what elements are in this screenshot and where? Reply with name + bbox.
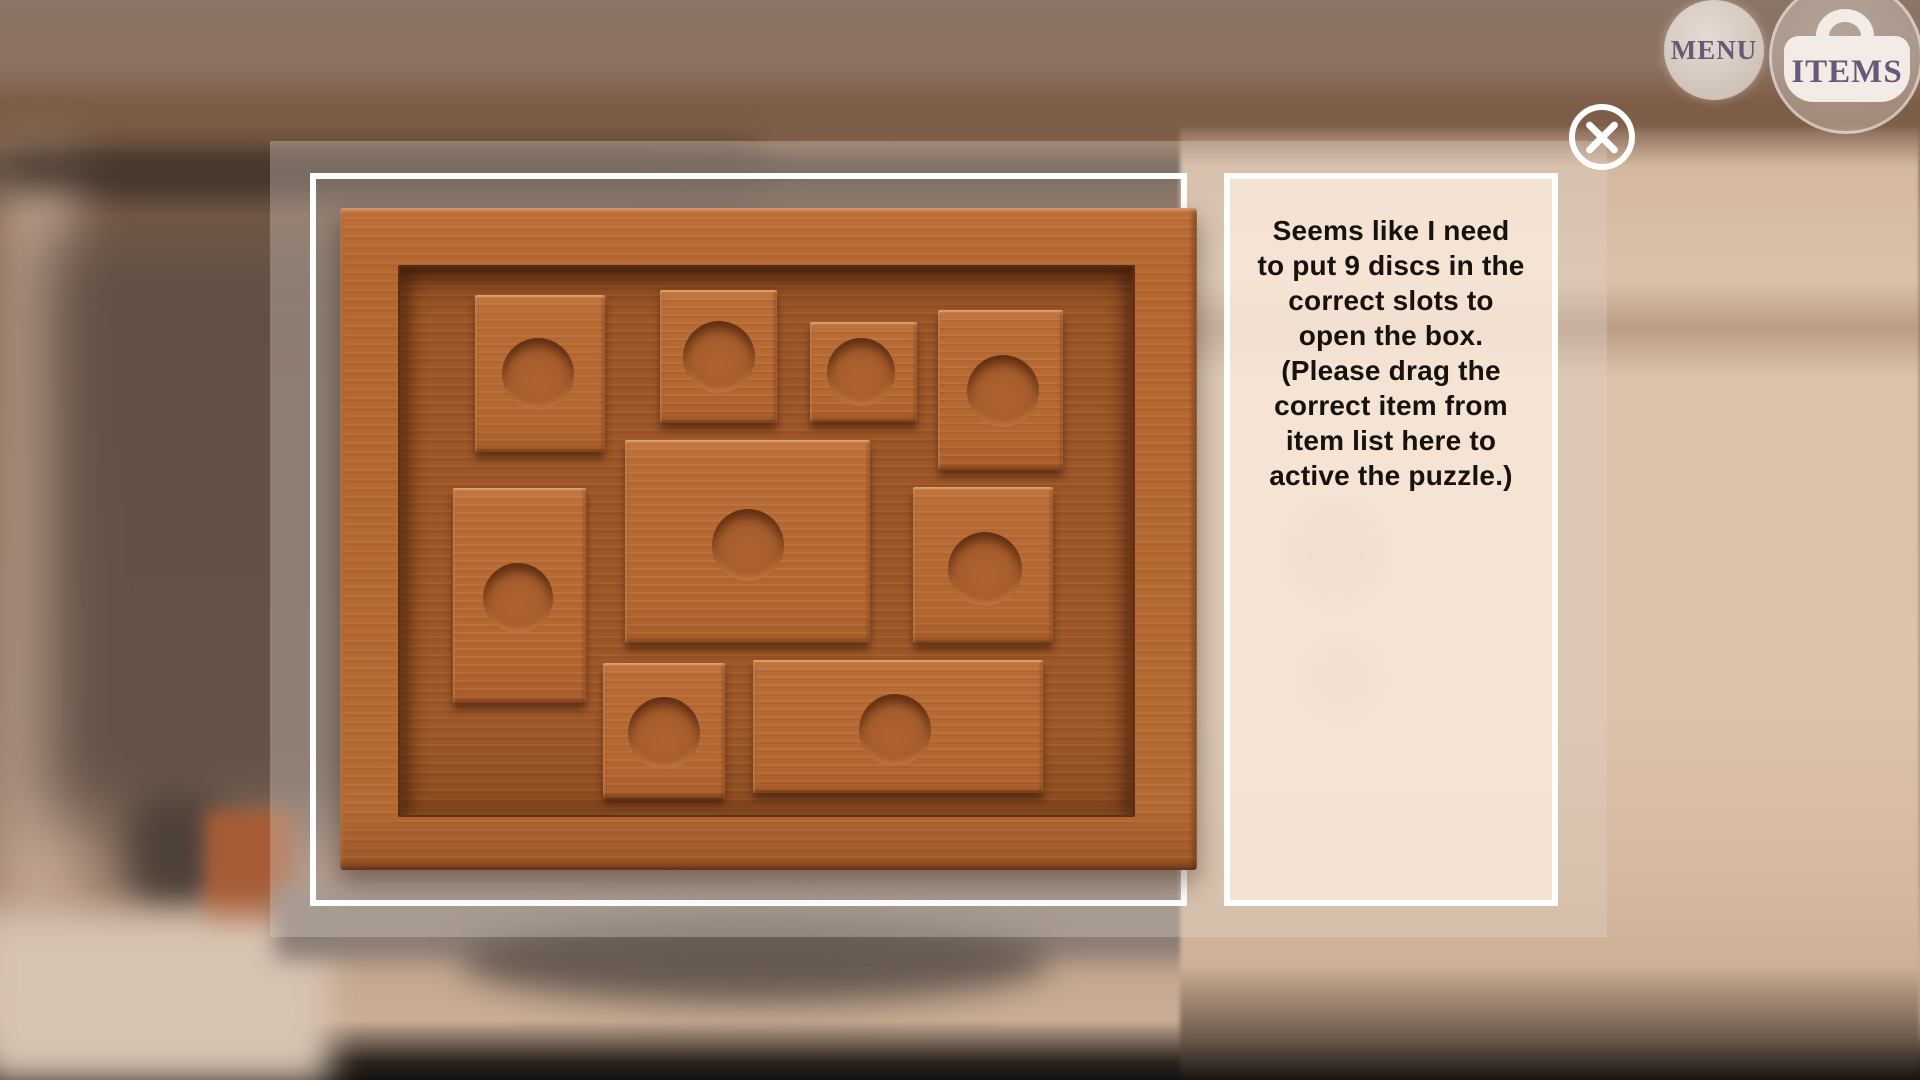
disc-slot[interactable]: [502, 338, 574, 410]
disc-slot[interactable]: [628, 697, 700, 769]
disc-slot[interactable]: [967, 355, 1039, 427]
instruction-text: Seems like I need to put 9 discs in the …: [1230, 179, 1552, 493]
game-screen: Seems like I need to put 9 discs in the …: [0, 0, 1920, 1080]
disc-slot[interactable]: [827, 338, 895, 406]
items-button-label: ITEMS: [1791, 54, 1902, 91]
disc-slot-tile[interactable]: [475, 295, 605, 452]
menu-button[interactable]: MENU: [1664, 0, 1764, 100]
disc-slot-tile[interactable]: [810, 322, 917, 422]
disc-slot[interactable]: [948, 532, 1022, 606]
puzzle-board[interactable]: [340, 208, 1197, 870]
disc-slot-tile[interactable]: [938, 310, 1063, 470]
disc-slot[interactable]: [712, 509, 784, 581]
disc-slot[interactable]: [859, 694, 931, 766]
disc-slot-tile[interactable]: [753, 660, 1043, 793]
disc-slot-tile[interactable]: [603, 663, 725, 798]
menu-button-label: MENU: [1671, 35, 1758, 66]
disc-slot-tile[interactable]: [913, 487, 1053, 643]
disc-slot-tile[interactable]: [453, 488, 586, 703]
disc-slot-tile[interactable]: [660, 290, 777, 423]
instruction-panel: Seems like I need to put 9 discs in the …: [1224, 173, 1558, 906]
puzzle-dialog: Seems like I need to put 9 discs in the …: [270, 141, 1607, 937]
disc-slot[interactable]: [683, 321, 755, 393]
disc-slot[interactable]: [483, 563, 553, 633]
close-icon: [1575, 110, 1629, 164]
bag-icon: ITEMS: [1784, 36, 1910, 102]
disc-slot-tile[interactable]: [625, 440, 870, 643]
close-button[interactable]: [1569, 104, 1635, 170]
